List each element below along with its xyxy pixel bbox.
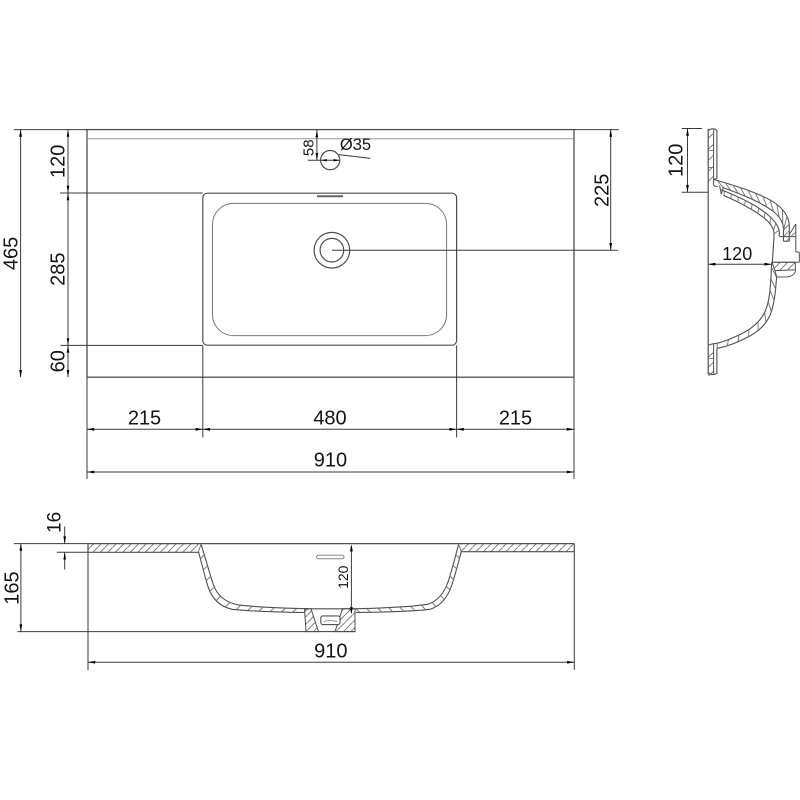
svg-text:58: 58 — [300, 139, 317, 156]
svg-text:215: 215 — [128, 407, 161, 429]
svg-text:120: 120 — [722, 244, 752, 264]
svg-text:480: 480 — [313, 407, 346, 429]
svg-text:910: 910 — [314, 450, 347, 472]
svg-text:120: 120 — [335, 565, 351, 589]
svg-text:120: 120 — [47, 145, 69, 178]
svg-text:215: 215 — [499, 407, 532, 429]
svg-text:225: 225 — [591, 174, 613, 207]
svg-text:465: 465 — [0, 237, 22, 270]
svg-text:120: 120 — [665, 144, 687, 177]
svg-text:16: 16 — [45, 512, 66, 533]
svg-text:60: 60 — [47, 350, 69, 372]
svg-text:165: 165 — [1, 571, 23, 604]
svg-text:910: 910 — [314, 641, 347, 663]
svg-text:285: 285 — [47, 253, 69, 286]
svg-text:Ø35: Ø35 — [340, 136, 371, 154]
